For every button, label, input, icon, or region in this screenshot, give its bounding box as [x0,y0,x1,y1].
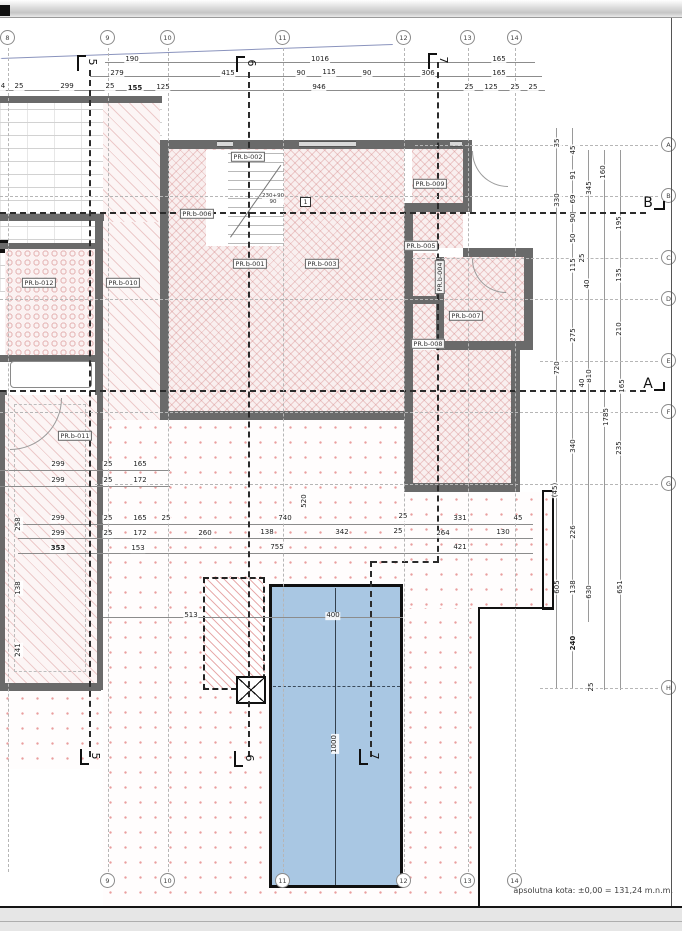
grid-bubble-top-14: 14 [507,30,522,45]
window-chrome-strip [0,0,682,18]
dim-label: 125 [155,84,170,92]
grid-row-bubble-G: G [661,476,676,491]
dim-label-vertical: 210 [616,321,624,336]
window-north-2 [299,141,356,147]
door-arc-ne [472,151,508,187]
wall-east-wing-right [524,253,533,350]
dim-label: 25 [528,84,539,92]
section-digit-5-top: 5 [85,57,99,67]
dim-label-vertical: 40 [579,378,587,389]
dim-label-vertical: 235 [616,440,624,455]
section-cut-bracket-B [654,201,665,210]
section-line-5 [89,70,91,757]
grid-row-line-F [0,412,658,413]
dim-label-vertical: 810 [586,368,594,383]
dim-label-vertical: 135 [616,267,624,282]
dim-label: 299 [50,461,65,469]
datum-note: apsolutna kota: ±0,00 = 131,24 m.n.m. [513,886,673,895]
dim-line-h [103,617,403,618]
grid-row-line-G [95,484,658,485]
fixture-counter [10,361,92,388]
dim-label-vertical: 241 [15,642,23,657]
pool-centerline-h [273,686,400,687]
dim-label-vertical: 605 [554,579,562,594]
dim-label-vertical: 1000 [331,734,339,754]
dim-label: 25 [103,530,114,538]
door-size-line2: 90 [262,199,284,205]
dim-label-vertical: (45) [552,482,560,498]
shaft-box [236,676,266,704]
dim-label-vertical: 25 [579,253,587,264]
dim-label-vertical: 520 [301,493,309,508]
dim-label-vertical: 345 [586,180,594,195]
dim-label: 165 [491,56,506,64]
dim-label-vertical: 720 [554,360,562,375]
grid-bubble-top-13: 13 [460,30,475,45]
dim-label: 115 [321,69,336,77]
dim-line-h [18,524,533,525]
dim-label-vertical: 651 [617,579,625,594]
dim-label: 632 [0,56,2,64]
door-number-box: 1 [300,197,311,207]
room-label-PR.b-008: PR.b-008 [411,339,445,349]
section-cut-letter-B: B [643,195,653,211]
dim-line-h [0,486,170,487]
dim-label-vertical: 50 [570,233,578,244]
dim-label: 172 [132,477,147,485]
dim-label: 279 [109,70,124,78]
section-line-7-jog [371,561,439,563]
dim-label: 165 [132,461,147,469]
dim-label-vertical: 115 [570,257,578,272]
room-label-PR.b-010: PR.b-010 [106,278,140,288]
dim-label: 415 [220,70,235,78]
door-size-tag: 230+90 90 [262,193,284,205]
dim-line-h [18,538,533,539]
terrace-fill-east [404,492,552,608]
dim-label: 25 [105,83,116,91]
dim-label: 299 [50,530,65,538]
sheet-bottom-band [0,906,682,931]
dim-label: 153 [130,545,145,553]
planter-hatched [203,577,265,690]
dim-label: 342 [334,529,349,537]
section-line-7-lower [370,561,372,757]
dim-label: 264 [435,530,450,538]
grid-col-line-10 [168,48,169,872]
grid-row-line-A [415,145,658,146]
grid-row-bubble-H: H [661,680,676,695]
dim-label: 353 [50,545,67,553]
sheet-bottom-line [0,921,682,922]
dim-label-vertical: 1785 [603,407,611,427]
dim-label-vertical: 330 [554,192,562,207]
dim-label-vertical: 40 [584,279,592,290]
section-digit-6-top: 6 [244,58,258,68]
dim-label: 90 [362,70,373,78]
section-digit-7-top: 7 [436,55,450,65]
grid-bubble-top-10: 10 [160,30,175,45]
room-label-PR.b-004: PR.b-004 [435,260,445,294]
room-label-PR.b-007: PR.b-007 [449,311,483,321]
grid-bubble-bottom-10: 10 [160,873,175,888]
dim-label: 138 [259,529,274,537]
dim-label: 1016 [310,56,330,64]
grid-row-bubble-E: E [661,353,676,368]
dim-label-vertical: 45 [570,145,578,156]
dim-label-vertical: 275 [570,327,578,342]
section-digit-7-bottom: 7 [367,751,381,761]
dim-label: 25 [510,84,521,92]
dim-label: 130 [495,529,510,537]
grid-col-line-11 [283,48,284,872]
dim-line-h [0,470,170,471]
dim-label-vertical: 25 [588,682,596,693]
dim-label: 299 [59,83,74,91]
grid-bubble-bottom-12: 12 [396,873,411,888]
dim-label: 299 [50,515,65,523]
grid-row-line-C [412,258,658,259]
dim-label: 946 [311,84,326,92]
dim-label-vertical: 240 [570,635,578,652]
dim-line-h [90,76,542,77]
wall-sw-bottom [0,683,101,691]
room-label-PR.b-003: PR.b-003 [305,259,339,269]
dim-label: 172 [132,530,147,538]
dim-label: 299 [50,477,65,485]
dim-label: 25 [103,477,114,485]
room-label-PR.b-002: PR.b-002 [231,152,265,162]
dim-label-vertical: 90 [570,213,578,224]
dim-label-vertical: 165 [619,378,627,393]
grid-row-bubble-D: D [661,291,676,306]
grid-row-bubble-C: C [661,250,676,265]
section-digit-6-bottom: 6 [242,753,256,763]
dim-label: 25 [398,513,409,521]
terrace-edge-east [478,608,480,906]
dim-label: 155 [127,85,144,93]
dim-label: 25 [103,461,114,469]
dim-label: 190 [124,56,139,64]
room-001-003-fill [169,149,404,411]
dim-label: 513 [183,612,198,620]
dim-label: 153 [0,70,1,78]
section-digit-5-bottom: 5 [88,751,102,761]
dim-label-vertical: 226 [570,524,578,539]
floor-plan-sheet: 89910101111121213131414ABCDEFGH 63219010… [0,0,682,931]
grid-bubble-top-8: 8 [0,30,15,45]
room-label-PR.b-001: PR.b-001 [233,259,267,269]
dim-label: 331 [452,515,467,523]
room-label-PR.b-006: PR.b-006 [180,209,214,219]
room-label-PR.b-009: PR.b-009 [413,179,447,189]
corner-mark [0,5,10,16]
grid-bubble-top-12: 12 [396,30,411,45]
section-cut-line-a [0,390,646,392]
room-label-PR.b-012: PR.b-012 [22,278,56,288]
dim-label: 90 [296,70,307,78]
wall-east-wing-top [463,248,533,257]
grid-bubble-bottom-9: 9 [100,873,115,888]
dim-label-vertical: 258 [15,516,23,531]
grid-col-line-12 [404,48,405,872]
dim-label-vertical: 195 [616,215,624,230]
dim-label: 400 [325,612,340,620]
dim-label: 25 [103,515,114,523]
dim-label: 421 [452,544,467,552]
dim-label: 125 [483,84,498,92]
dim-line-v [620,150,621,690]
dim-label: 4 [0,83,6,91]
dim-label-vertical: 69 [570,194,578,205]
room-label-PR.b-011: PR.b-011 [58,431,92,441]
dim-label: 25 [464,84,475,92]
dim-label: 165 [132,515,147,523]
dim-label: 165 [491,70,506,78]
dim-label-vertical: 91 [570,170,578,181]
room-012-fill [5,249,97,358]
section-cut-line-b [0,212,646,214]
room-label-PR.b-005: PR.b-005 [404,241,438,251]
grid-row-line-D [0,299,658,300]
grid-bubble-top-9: 9 [100,30,115,45]
section-line-6 [248,72,250,757]
dim-label: 25 [161,515,172,523]
dim-label: 25 [14,83,25,91]
dim-label: 740 [277,515,292,523]
section-cut-letter-A: A [643,376,653,392]
dim-label-vertical: 35 [554,138,562,149]
sheet-frame-right [671,18,672,906]
dim-label-vertical: 138 [15,580,23,595]
window-north-1 [217,141,233,147]
dim-label: 45 [513,515,524,523]
dim-line-h [18,553,533,554]
terrace-edge-step [478,607,554,609]
wall-north-site [0,96,162,103]
grid-bubble-top-11: 11 [275,30,290,45]
dim-label-vertical: 160 [600,164,608,179]
dim-line-v [588,150,589,622]
dim-label: 306 [420,70,435,78]
dim-label-vertical: 340 [570,438,578,453]
grid-col-line-14 [515,48,516,872]
roof-edge-line [0,44,393,59]
grid-row-bubble-A: A [661,137,676,152]
window-north-3 [450,141,462,147]
section-cut-bracket-A [654,382,665,391]
grid-col-line-13 [468,48,469,872]
dim-label-vertical: 138 [570,579,578,594]
grid-row-bubble-F: F [661,404,676,419]
grid-col-line-8 [8,48,9,872]
dim-label: 260 [197,530,212,538]
dim-label-vertical: 630 [586,584,594,599]
dim-label: 755 [269,544,284,552]
room-008-fill [413,350,512,483]
grid-row-line-H [540,688,658,689]
dim-label: 25 [393,528,404,536]
section-line-7-upper [437,62,439,562]
grid-bubble-bottom-13: 13 [460,873,475,888]
grid-bubble-bottom-11: 11 [275,873,290,888]
